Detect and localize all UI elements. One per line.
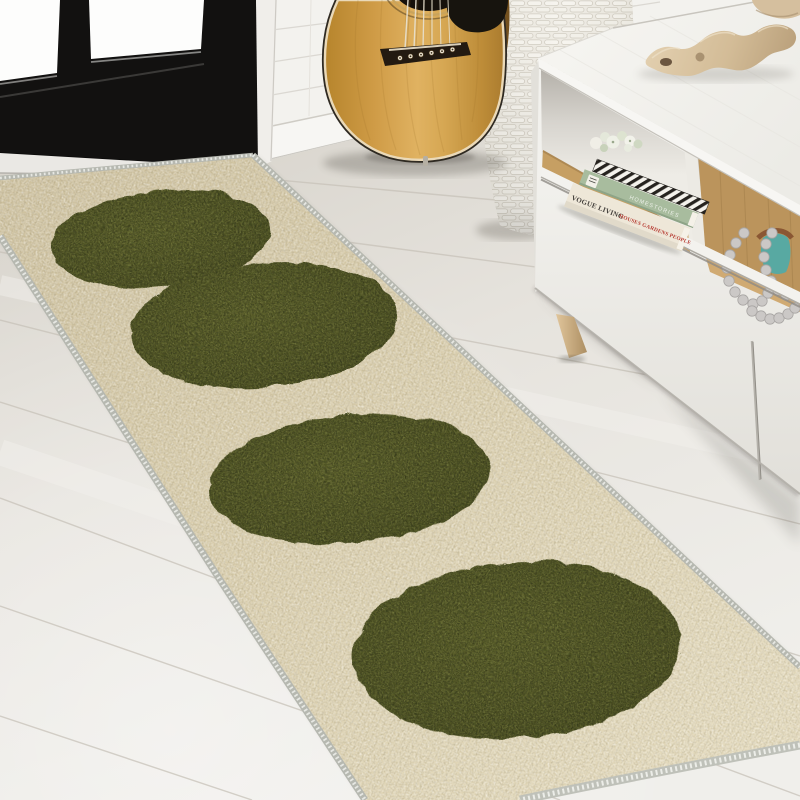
driftwood-knot <box>696 53 705 62</box>
door-glass-pane-right <box>89 0 204 59</box>
scene-photo: HOMESTORIES VOGUE LIVING HOUSES GARDENS … <box>0 0 800 800</box>
product-photo: HOMESTORIES VOGUE LIVING HOUSES GARDENS … <box>0 0 800 800</box>
door-glass-pane-left <box>0 0 60 81</box>
leg-shadow <box>559 356 585 363</box>
guitar-endpin <box>423 156 428 166</box>
driftwood-hole <box>660 58 672 66</box>
